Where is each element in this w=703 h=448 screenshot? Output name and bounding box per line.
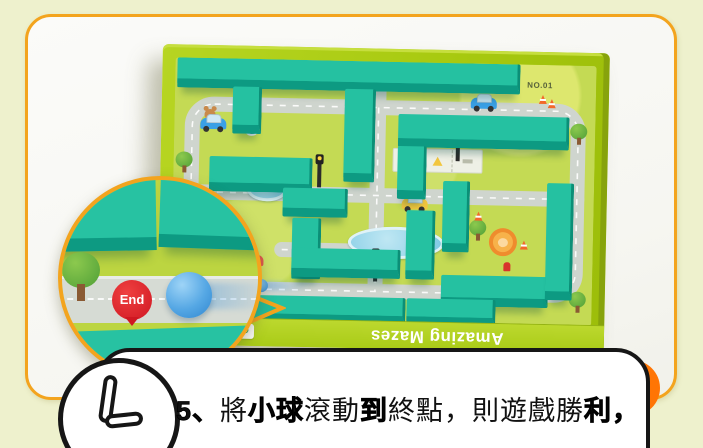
end-marker: End xyxy=(112,280,152,320)
tree xyxy=(175,151,192,172)
blue-car xyxy=(471,97,497,109)
maze-wall xyxy=(442,181,470,253)
maze-wall xyxy=(282,188,348,218)
warning-sign-icon xyxy=(423,149,453,172)
traffic-cone xyxy=(539,95,547,104)
maze-wall xyxy=(343,89,376,183)
maze-wall xyxy=(405,210,435,280)
maze-wall xyxy=(398,114,570,151)
bear-in-car xyxy=(200,118,226,130)
traffic-cone xyxy=(548,99,556,108)
traffic-cone xyxy=(474,212,482,221)
tree xyxy=(62,252,100,301)
instruction-segment: 到 xyxy=(360,396,388,426)
maze-wall xyxy=(232,86,262,134)
maze-wall xyxy=(58,176,157,252)
fire-hydrant xyxy=(503,262,510,271)
instruction-segment: 滾動 xyxy=(304,396,360,426)
instruction-text: 5、將小球滾動到終點，則遊戲勝利， xyxy=(176,389,646,428)
clock-hands-icon xyxy=(63,363,165,448)
blue-ball xyxy=(166,272,212,318)
maze-wall xyxy=(291,248,401,279)
tree xyxy=(570,124,587,145)
instruction-segment: 利， xyxy=(584,396,640,426)
traffic-cone xyxy=(520,241,528,250)
traffic-light xyxy=(317,163,322,187)
maze-wall xyxy=(397,146,427,200)
page: { "board": { "number_label": "NO.01", "t… xyxy=(0,0,703,448)
instruction-segment: 小球 xyxy=(248,396,304,426)
maze-wall xyxy=(159,176,262,251)
instruction-segment: 終點，則遊戲勝 xyxy=(388,396,584,426)
instruction-segment: 將 xyxy=(220,396,248,426)
board-number: NO.01 xyxy=(527,81,553,91)
yellow-car xyxy=(402,198,428,210)
instruction-segment: 5、 xyxy=(176,396,220,426)
clock-icon xyxy=(58,358,180,448)
maze-wall xyxy=(545,183,574,301)
board-title: Amazing Mazes xyxy=(327,324,547,349)
tree xyxy=(469,219,486,240)
